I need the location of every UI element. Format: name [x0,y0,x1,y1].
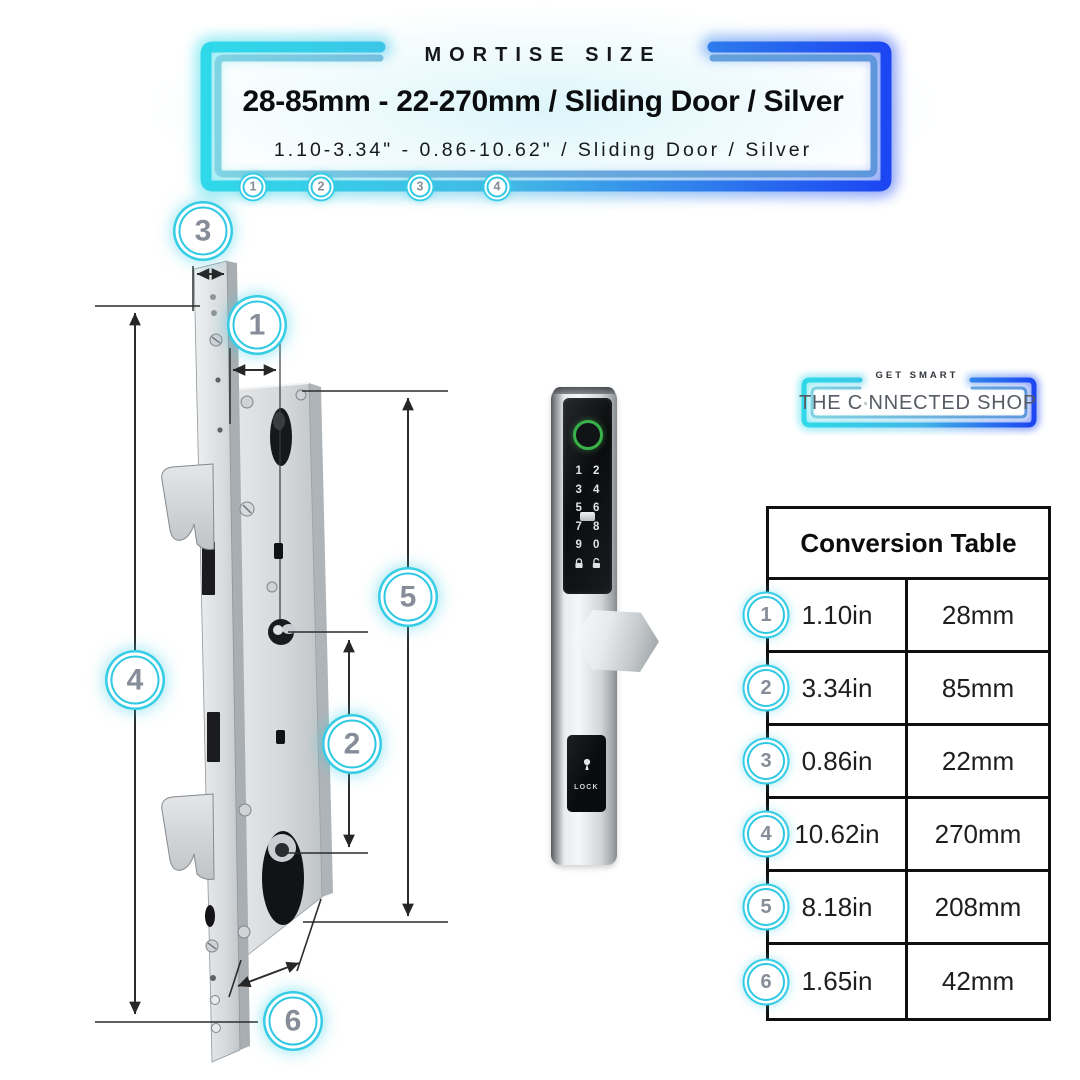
row-badge-2-label: 2 [760,678,771,698]
inches-cell: 0.86in [769,726,908,796]
product-title: 28-85mm - 22-270mm / Sliding Door / Silv… [143,85,943,119]
inches-cell: 1.65in [769,945,908,1018]
inches-cell: 3.34in [769,653,908,723]
table-row: 6 1.65in 42mm [769,945,1048,1018]
hook-bolt-lower [162,794,214,879]
dimension-badge-2-label: 2 [344,729,361,759]
fingerprint-ring-icon [573,420,603,450]
conversion-table: Conversion Table 1 1.10in 28mm 2 3.34in … [766,506,1051,1021]
smart-lock-product: 1 2 3 4 5 6 7 8 9 0 [551,387,617,865]
header-eyebrow: MORTISE SIZE [343,44,743,67]
dimension-badge-2: 2 [328,720,377,769]
mm-cell: 270mm [908,799,1048,869]
keypad-digit: 8 [588,520,606,534]
keypad-chip [580,512,595,521]
header-marker-badge-1: 1 [243,177,264,198]
table-row: 2 3.34in 85mm [769,653,1048,726]
conversion-table-title: Conversion Table [769,509,1048,580]
header-marker-badge-2: 2 [311,177,332,198]
lock-faceplate [194,261,250,1062]
keypad-digit: 1 [570,464,588,478]
dimension-badge-1: 1 [233,301,282,350]
table-row: 5 8.18in 208mm [769,872,1048,945]
dimension-badge-6: 6 [269,997,318,1046]
inches-cell: 8.18in [769,872,908,942]
keypad-digit: 9 [570,538,588,552]
keypad-digit: 3 [570,483,588,497]
row-badge-5: 5 [747,888,785,926]
row-badge-6: 6 [747,963,785,1001]
smart-lock-keypad-panel: 1 2 3 4 5 6 7 8 9 0 [563,398,612,594]
inches-cell: 1.10in [769,580,908,650]
keypad-digit: 0 [588,538,606,552]
mm-cell: 208mm [908,872,1048,942]
row-badge-4: 4 [747,815,785,853]
table-row: 1 1.10in 28mm [769,580,1048,653]
keypad-digit: 2 [588,464,606,478]
dimension-badge-3-label: 3 [195,216,212,246]
product-subtitle: 1.10-3.34" - 0.86-10.62" / Sliding Door … [193,139,893,162]
dimension-badge-5: 5 [384,573,433,622]
row-badge-6-label: 6 [760,972,771,992]
brand-name-suffix: NNECTED SHOP [868,392,1037,415]
row-badge-3-label: 3 [760,751,771,771]
mm-cell: 85mm [908,653,1048,723]
mm-cell: 28mm [908,580,1048,650]
dimension-badge-1-label: 1 [249,310,266,340]
row-badge-1-label: 1 [760,605,771,625]
mm-cell: 42mm [908,945,1048,1018]
header-marker-4-label: 4 [494,181,501,194]
header-marker-1-label: 1 [250,181,257,194]
table-row: 3 0.86in 22mm [769,726,1048,799]
row-badge-4-label: 4 [760,824,771,844]
dimension-badge-4-label: 4 [127,665,144,695]
wifi-o-icon [864,395,867,412]
lock-key-icon [570,557,588,571]
header-marker-2-label: 2 [318,181,325,194]
mm-cell: 22mm [908,726,1048,796]
brand-tagline: GET SMART [837,370,997,381]
header-marker-badge-3: 3 [410,177,431,198]
keyhole-icon [581,757,593,773]
table-row: 4 10.62in 270mm [769,799,1048,872]
row-badge-3: 3 [747,742,785,780]
mortise-size-infographic: MORTISE SIZE 28-85mm - 22-270mm / Slidin… [0,0,1080,1080]
dimension-badge-5-label: 5 [400,582,417,612]
header-marker-badge-4: 4 [487,177,508,198]
dimension-badge-4: 4 [111,656,160,705]
row-badge-5-label: 5 [760,897,771,917]
row-badge-2: 2 [747,669,785,707]
dimension-badge-3: 3 [179,207,228,256]
hook-bolt-upper [162,464,214,549]
inches-cell: 10.62in [769,799,908,869]
dimension-badge-6-label: 6 [285,1006,302,1036]
keypad-digit: 7 [570,520,588,534]
brand-name-prefix: THE C [799,392,863,415]
brand-name: THE C NNECTED SHOP [799,392,1037,414]
smart-lock-key-panel: LOCK [567,735,606,812]
header-marker-3-label: 3 [417,181,424,194]
lock-label: LOCK [574,784,599,791]
smart-lock-top-cap [553,387,615,394]
row-badge-1: 1 [747,596,785,634]
unlock-key-icon [588,557,606,571]
keypad-digit: 4 [588,483,606,497]
